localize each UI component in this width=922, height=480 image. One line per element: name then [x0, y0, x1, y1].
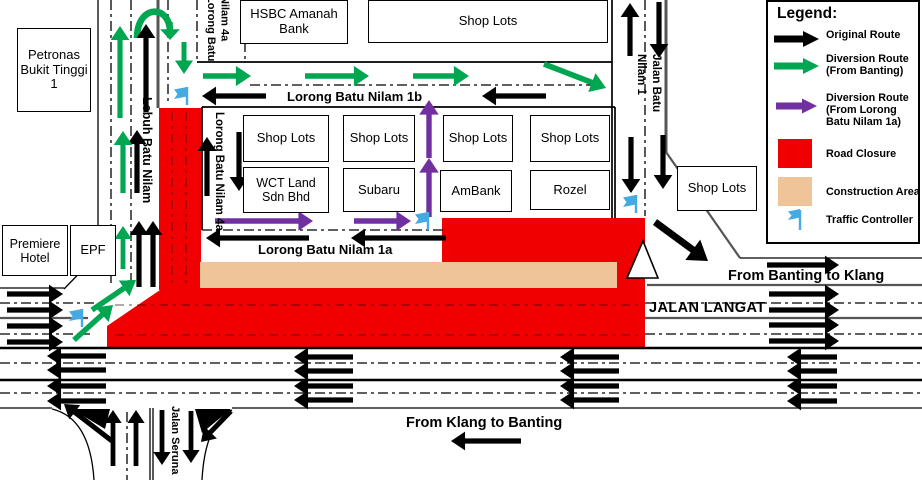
building-label: Subaru: [358, 183, 400, 198]
building-label: Shop Lots: [541, 131, 600, 146]
original-route-arrow-icon: [772, 31, 820, 47]
legend-title: Legend:: [777, 5, 837, 23]
building-label: Shop Lots: [449, 131, 508, 146]
building-shop-lots-2: Shop Lots: [343, 115, 415, 162]
diversion-lorong-arrow: [215, 211, 313, 230]
building-epf: EPF: [70, 225, 116, 276]
original-route-arrow: [47, 347, 106, 366]
building-ambank: AmBank: [440, 170, 512, 212]
building-label: Shop Lots: [350, 131, 409, 146]
building-label: Shop Lots: [257, 131, 316, 146]
original-route-arrow: [451, 432, 521, 451]
diversion-banting-arrow: [544, 64, 606, 92]
direction-label-from-banting: From Banting to Klang: [728, 268, 884, 284]
original-route-arrow: [47, 361, 106, 380]
traffic-controller-flag: [623, 195, 636, 213]
original-route-arrow: [769, 285, 839, 304]
building-hsbc: HSBC Amanah Bank: [240, 0, 348, 44]
building-shop-lots-1: Shop Lots: [243, 115, 329, 162]
building-wct-land: WCT Land Sdn Bhd: [243, 167, 329, 213]
legend-item-label: Road Closure: [826, 148, 920, 160]
construction-area-swatch: [778, 177, 812, 206]
street-label-lorong-batu-nilam-1a: Lorong Batu Nilam 1a: [258, 242, 392, 257]
original-route-arrow: [482, 87, 546, 106]
road-closure-lebuh-batu-nilam: [159, 108, 201, 290]
diversion-banting-arrow: [305, 66, 369, 86]
street-label-lorong-batu-nilam-4a: Lorong Batu Nilam 4a: [213, 112, 225, 260]
building-petronas: Petronas Bukit Tinggi 1: [17, 28, 91, 112]
building-label: WCT Land Sdn Bhd: [245, 176, 327, 204]
original-route-arrow: [182, 411, 199, 463]
original-route-arrow: [127, 410, 144, 466]
building-shop-lots-right: Shop Lots: [677, 166, 757, 211]
building-shop-lots-3: Shop Lots: [443, 115, 513, 162]
building-label: Premiere Hotel: [4, 237, 66, 265]
building-label: Shop Lots: [459, 14, 518, 29]
diversion-banting-arrow: [111, 26, 130, 118]
diversion-lorong-arrow-icon: [772, 98, 820, 114]
diversion-banting-arrow: [114, 226, 131, 269]
street-label-jalan-langat: JALAN LANGAT: [649, 300, 766, 316]
original-route-arrow: [202, 87, 266, 106]
original-route-arrow: [130, 221, 149, 287]
building-label: Petronas Bukit Tinggi 1: [19, 48, 89, 92]
road-closure-swatch: [778, 139, 812, 168]
original-route-arrow: [621, 3, 640, 56]
legend-item-label: Traffic Controller: [826, 214, 920, 226]
building-label: HSBC Amanah Bank: [242, 7, 346, 36]
road-closure-jalan-langat: [107, 288, 645, 348]
diversion-banting-arrow: [175, 42, 193, 74]
legend-item-label: Original Route: [826, 29, 920, 41]
building-label: AmBank: [451, 184, 500, 199]
street-label-jalan-batu-nilam-1: Jalan Batu Nilam 1: [627, 54, 663, 142]
legend-item-label: Diversion Route (From Lorong Batu Nilam …: [826, 92, 920, 128]
original-route-arrow: [655, 222, 708, 261]
building-shop-lots-4: Shop Lots: [530, 115, 610, 162]
building-subaru: Subaru: [343, 168, 415, 212]
street-label-lorong-batu-nilam-1b: Lorong Batu Nilam 1b: [287, 89, 422, 104]
construction-area: [200, 262, 617, 288]
direction-label-from-klang: From Klang to Banting: [406, 415, 562, 431]
legend: Legend: Original Route Diversion Route (…: [766, 0, 920, 244]
original-route-arrow: [7, 317, 63, 336]
original-route-arrow: [654, 135, 673, 189]
traffic-controller-flag: [415, 212, 428, 230]
legend-item-label: Construction Area: [826, 186, 920, 198]
building-rozel: Rozel: [530, 170, 610, 210]
diversion-banting-arrow: [203, 66, 251, 86]
traffic-controller-flag: [174, 87, 187, 105]
building-label: Shop Lots: [688, 181, 747, 196]
diversion-banting-arrow: [160, 22, 180, 40]
diversion-lorong-arrow: [354, 211, 411, 230]
original-route-arrow: [294, 362, 353, 381]
legend-item-label: Diversion Route (From Banting): [826, 53, 920, 77]
building-shop-lots-top: Shop Lots: [368, 0, 608, 43]
street-label-lebuh-batu-nilam: Lebuh Batu Nilam: [140, 97, 154, 219]
street-label-jalan-seruna: Jalan Seruna: [169, 406, 181, 480]
traffic-controller-flag-icon: [772, 207, 820, 232]
building-premiere-hotel: Premiere Hotel: [2, 225, 68, 276]
building-label: EPF: [80, 243, 105, 258]
original-route-arrow: [787, 362, 837, 381]
diversion-banting-arrow-icon: [772, 58, 820, 74]
building-label: Rozel: [553, 183, 586, 198]
diversion-lorong-arrow: [419, 100, 438, 158]
traffic-diversion-map: Petronas Bukit Tinggi 1 HSBC Amanah Bank…: [0, 0, 922, 480]
diversion-lorong-arrow: [419, 158, 438, 217]
original-route-arrow: [560, 362, 619, 381]
original-route-arrow: [622, 137, 641, 193]
diversion-banting-arrow: [114, 131, 133, 193]
street-label-lorong-batu-nilam-4a-top: Lorong Batu Nilam 4a: [204, 0, 242, 64]
diversion-banting-arrow: [413, 66, 469, 86]
